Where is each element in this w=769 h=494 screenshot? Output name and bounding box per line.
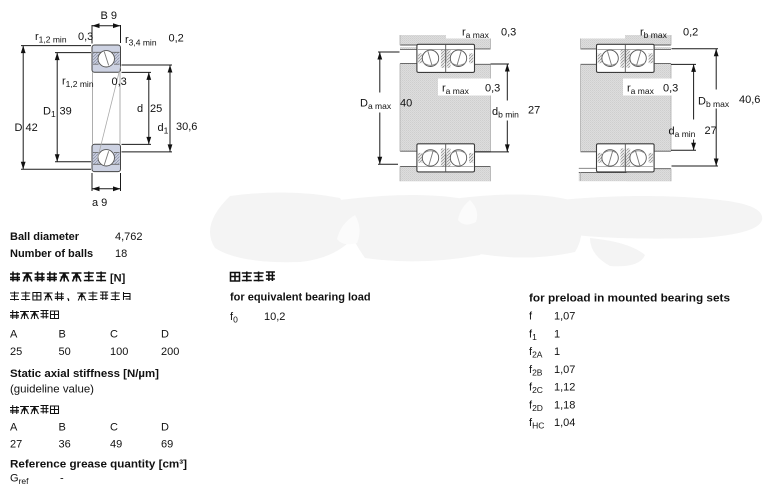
svg-text:0,3: 0,3: [78, 31, 93, 43]
svg-text:1: 1: [554, 346, 560, 358]
svg-text:Static axial stiffness [N/µm]: Static axial stiffness [N/µm]: [10, 368, 159, 380]
svg-text:0,2: 0,2: [169, 33, 184, 45]
svg-text:40,6: 40,6: [739, 94, 760, 106]
svg-text:B: B: [59, 422, 66, 434]
svg-text:49: 49: [110, 439, 122, 451]
svg-text:for preload in mounted bearing: for preload in mounted bearing sets: [529, 293, 730, 305]
svg-text:D: D: [161, 329, 169, 341]
svg-text:Ball diameter: Ball diameter: [10, 231, 80, 243]
svg-text:C: C: [110, 329, 118, 341]
svg-text:0,3: 0,3: [501, 27, 516, 39]
svg-text:200: 200: [161, 346, 179, 358]
svg-text:27: 27: [705, 125, 717, 137]
svg-text:D 42: D 42: [15, 122, 38, 134]
svg-text:Reference grease quantity [cm³: Reference grease quantity [cm³]: [10, 459, 187, 471]
svg-text:Number of balls: Number of balls: [10, 248, 93, 260]
svg-text:100: 100: [110, 346, 128, 358]
svg-text:1,07: 1,07: [554, 311, 575, 323]
svg-text:69: 69: [161, 439, 173, 451]
svg-text:4,762: 4,762: [115, 231, 143, 243]
svg-text:a 9: a 9: [92, 197, 107, 209]
svg-text:0,3: 0,3: [112, 76, 127, 88]
svg-text:d: d: [137, 103, 143, 115]
svg-text:39: 39: [60, 106, 72, 118]
svg-text:36: 36: [59, 439, 71, 451]
svg-text:[N]: [N]: [110, 273, 126, 285]
svg-text:A: A: [10, 329, 18, 341]
svg-text:1,12: 1,12: [554, 382, 575, 394]
svg-text:18: 18: [115, 248, 127, 260]
svg-text:A: A: [10, 422, 18, 434]
svg-text:0,3: 0,3: [485, 83, 500, 95]
svg-text:D: D: [161, 422, 169, 434]
svg-text:B: B: [59, 329, 66, 341]
svg-text:50: 50: [59, 346, 71, 358]
svg-text:25: 25: [150, 103, 162, 115]
svg-text:0,3: 0,3: [663, 83, 678, 95]
svg-text:-: -: [60, 473, 64, 485]
svg-text:(guideline value): (guideline value): [10, 384, 94, 396]
svg-text:C: C: [110, 422, 118, 434]
svg-text:25: 25: [10, 346, 22, 358]
svg-text:for equivalent bearing load: for equivalent bearing load: [230, 292, 371, 304]
svg-text:1,04: 1,04: [554, 417, 575, 429]
svg-text:1,07: 1,07: [554, 364, 575, 376]
svg-text:27: 27: [528, 105, 540, 117]
svg-text:1,18: 1,18: [554, 399, 575, 411]
svg-text:10,2: 10,2: [264, 311, 285, 323]
svg-text:1: 1: [554, 328, 560, 340]
svg-text:0,2: 0,2: [683, 27, 698, 39]
svg-text:B 9: B 9: [101, 10, 118, 22]
svg-text:40: 40: [400, 98, 412, 110]
svg-text:30,6: 30,6: [176, 121, 197, 133]
svg-text:27: 27: [10, 439, 22, 451]
